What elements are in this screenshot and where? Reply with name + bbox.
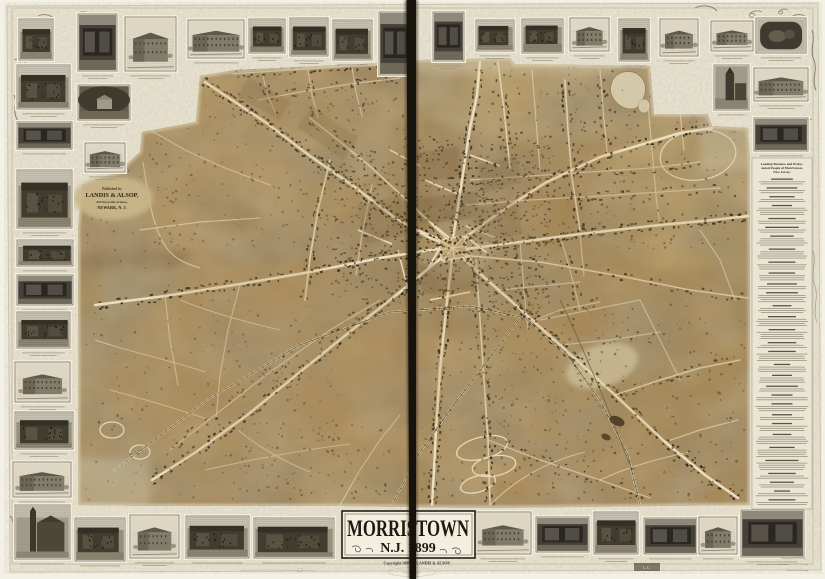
svg-text:NEWARK, N. J.: NEWARK, N. J. (97, 205, 126, 210)
svg-text:New Jersey.: New Jersey. (773, 170, 790, 174)
svg-text:Published by: Published by (102, 187, 122, 191)
svg-text:L.C.: L.C. (643, 565, 651, 570)
svg-text:LANDIS & ALSOP,: LANDIS & ALSOP, (86, 192, 139, 199)
svg-text:850 Roseville Avenue,: 850 Roseville Avenue, (96, 200, 127, 204)
